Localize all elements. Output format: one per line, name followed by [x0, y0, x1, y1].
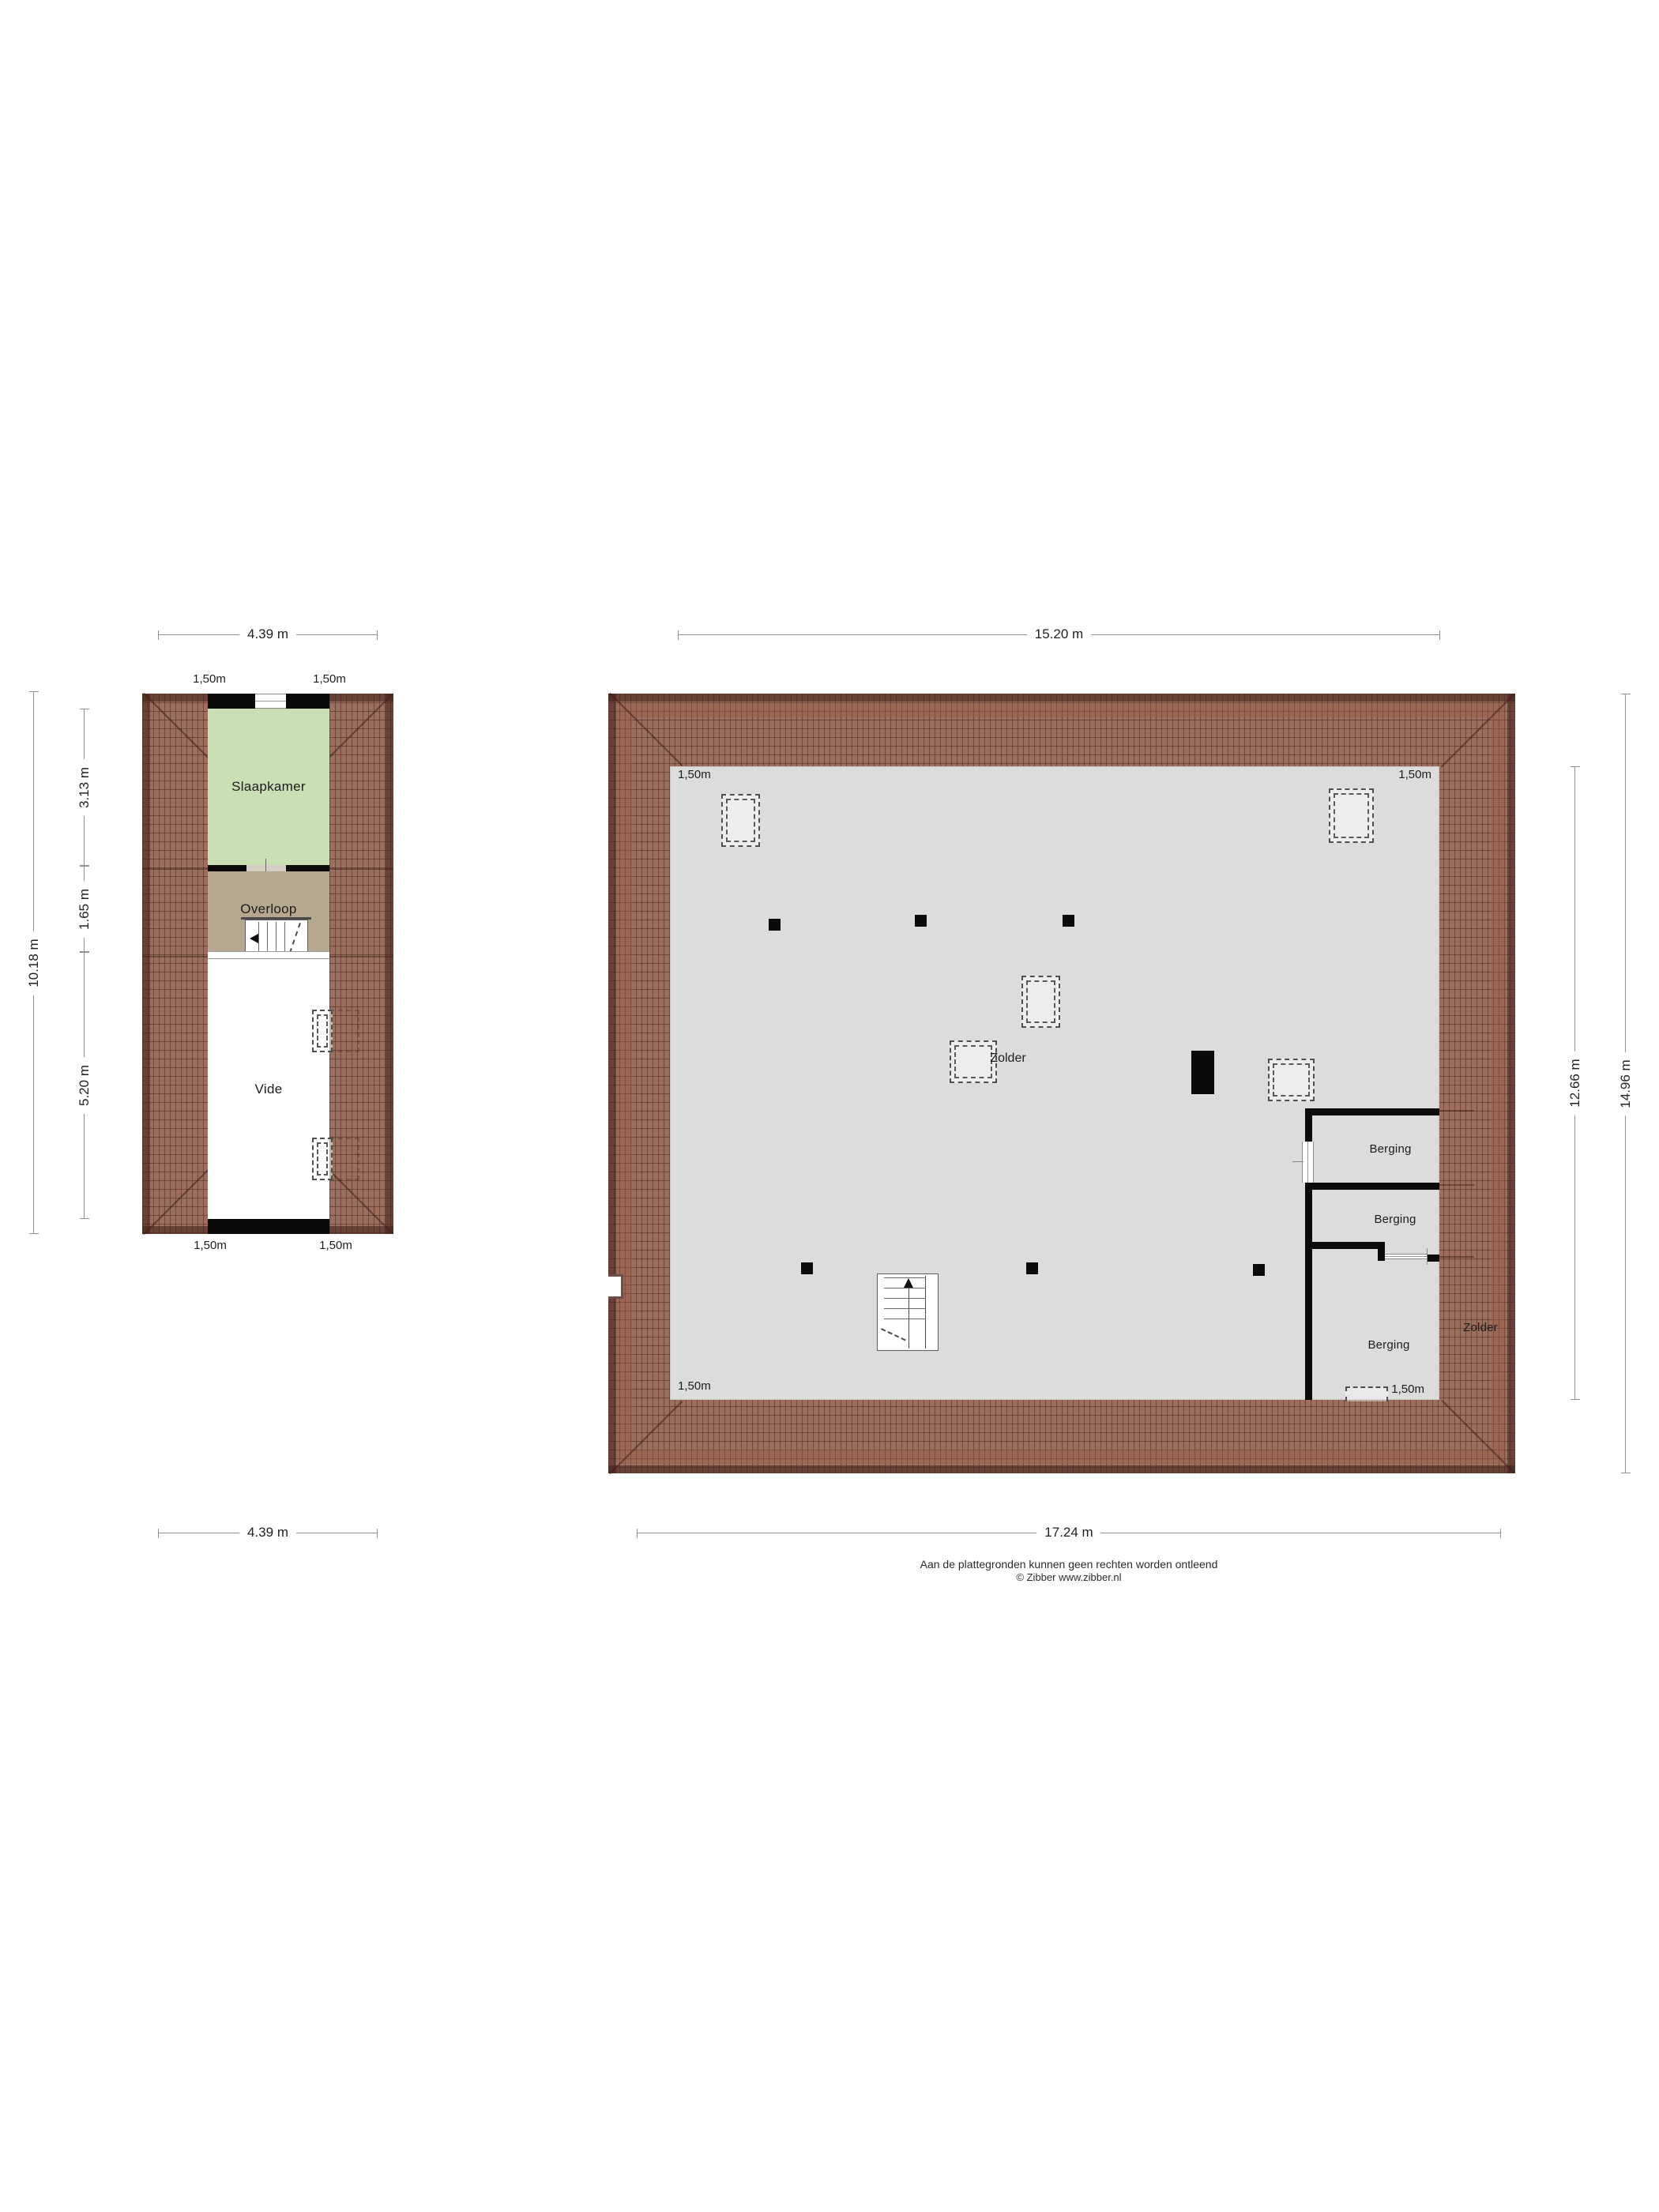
chimney-shaft	[1191, 1051, 1214, 1094]
structural-post	[1253, 1264, 1265, 1276]
clearance-label: 1,50m	[304, 1239, 367, 1252]
dim-large-right-outer: 14.96 m	[1625, 694, 1626, 1473]
roof-edge	[142, 1226, 208, 1234]
stair-rail-line	[925, 1276, 926, 1349]
roof-edge	[1507, 694, 1515, 1473]
structural-post	[1026, 1262, 1038, 1274]
floorplan-canvas: 4.39 m 1,50m 1,50m Slaapkamer Overloop	[0, 0, 1659, 2212]
room-berging2-label: Berging	[1348, 1213, 1443, 1226]
clearance-label: 1,50m	[678, 768, 711, 781]
footer-copyright: © Zibber www.zibber.nl	[634, 1571, 1503, 1584]
roof-edge	[329, 1226, 393, 1234]
structural-post	[1063, 915, 1074, 927]
roof-small-left	[142, 694, 208, 1234]
stairs-large	[877, 1273, 939, 1351]
roof-notch	[608, 1274, 623, 1299]
roof-edge	[386, 694, 393, 1234]
roof-seam	[329, 868, 393, 870]
clearance-label: 1,50m	[178, 672, 241, 686]
stair-treads	[258, 922, 292, 954]
clearance-label: 1,50m	[1368, 768, 1431, 781]
dim-small-bottom-label: 4.39 m	[239, 1525, 296, 1540]
dim-small-bottom: 4.39 m	[158, 1533, 378, 1533]
dim-large-right-inner: 12.66 m	[1574, 766, 1575, 1400]
door-opening	[246, 865, 286, 871]
roof-edge	[608, 694, 616, 1473]
dim-segment-slaapkamer-label: 3.13 m	[77, 759, 92, 816]
roof-edge	[142, 694, 150, 1234]
skylight-extension	[329, 1010, 359, 1052]
roof-seam	[1439, 1256, 1474, 1258]
skylight-extension	[329, 1138, 359, 1180]
footer-disclaimer: Aan de plattegronden kunnen geen rechten…	[634, 1558, 1503, 1571]
wall-berging-divider1	[1305, 1183, 1439, 1190]
room-vide: Vide	[208, 959, 329, 1219]
stair-center-line	[908, 1285, 909, 1349]
room-overloop-label: Overloop	[240, 901, 296, 917]
wall-berging-top	[1305, 1108, 1439, 1115]
window-berging	[1302, 1142, 1314, 1183]
dim-segment-overloop-label: 1.65 m	[77, 881, 92, 938]
skylight	[721, 794, 760, 847]
skylight	[312, 1138, 333, 1180]
dim-small-top: 4.39 m	[158, 634, 378, 635]
clearance-label: 1,50m	[678, 1379, 711, 1393]
dim-small-height-total: 10.18 m	[33, 691, 34, 1234]
dim-large-bottom-label: 17.24 m	[1036, 1525, 1100, 1540]
roof-seam	[1439, 1110, 1474, 1112]
dim-small-height-total-label: 10.18 m	[26, 931, 42, 995]
dim-large-bottom: 17.24 m	[637, 1533, 1501, 1533]
stair-direction-arrow	[904, 1278, 913, 1288]
window-sill-tick	[1292, 1161, 1303, 1162]
wall-berging-divider2	[1305, 1242, 1385, 1249]
structural-post	[801, 1262, 813, 1274]
room-vide-label: Vide	[255, 1082, 283, 1097]
room-berging1-label: Berging	[1343, 1142, 1438, 1156]
dim-segment-vide-label: 5.20 m	[77, 1057, 92, 1114]
stair-break-line	[881, 1328, 906, 1341]
skylight	[1268, 1059, 1315, 1101]
dim-segment-slaapkamer: 3.13 m	[84, 709, 85, 866]
wall-berging-jog	[1378, 1242, 1385, 1261]
wall-exterior-bottom	[208, 1219, 329, 1234]
landing-edge	[208, 951, 329, 959]
roof-edge	[608, 694, 1515, 702]
skylight	[312, 1010, 333, 1052]
footer: Aan de plattegronden kunnen geen rechten…	[634, 1558, 1503, 1584]
roof-seam	[142, 868, 208, 870]
structural-post	[769, 919, 781, 931]
wall-berging-right-stub	[1428, 1255, 1439, 1262]
window-top	[255, 694, 286, 709]
dim-small-top-label: 4.39 m	[239, 626, 296, 642]
room-berging3-label: Berging	[1341, 1338, 1436, 1352]
stair-direction-arrow	[250, 934, 258, 943]
dim-large-top: 15.20 m	[678, 634, 1440, 635]
skylight-partial	[1345, 1386, 1388, 1401]
roof-seam	[1439, 1184, 1474, 1186]
room-zolder-label: Zolder	[972, 1051, 1044, 1066]
clearance-label: 1,50m	[179, 1239, 242, 1252]
roof-edge	[608, 1465, 1515, 1473]
roof-seam	[142, 956, 208, 957]
room-slaapkamer-label: Slaapkamer	[231, 779, 306, 795]
clearance-label: 1,50m	[298, 672, 361, 686]
door-opening-berging	[1385, 1254, 1428, 1259]
skylight	[1329, 788, 1374, 843]
dim-segment-vide: 5.20 m	[84, 952, 85, 1219]
dim-large-right-outer-label: 14.96 m	[1618, 1051, 1634, 1115]
dim-large-right-inner-label: 12.66 m	[1567, 1051, 1583, 1115]
dim-segment-overloop: 1.65 m	[84, 866, 85, 952]
dim-large-top-label: 15.20 m	[1027, 626, 1091, 642]
room-slaapkamer: Slaapkamer	[208, 709, 329, 865]
floor-zolder	[670, 766, 1439, 1400]
skylight	[1021, 976, 1060, 1028]
roof-seam	[329, 956, 393, 957]
structural-post	[915, 915, 927, 927]
room-zolder-right-label: Zolder	[1441, 1321, 1520, 1334]
